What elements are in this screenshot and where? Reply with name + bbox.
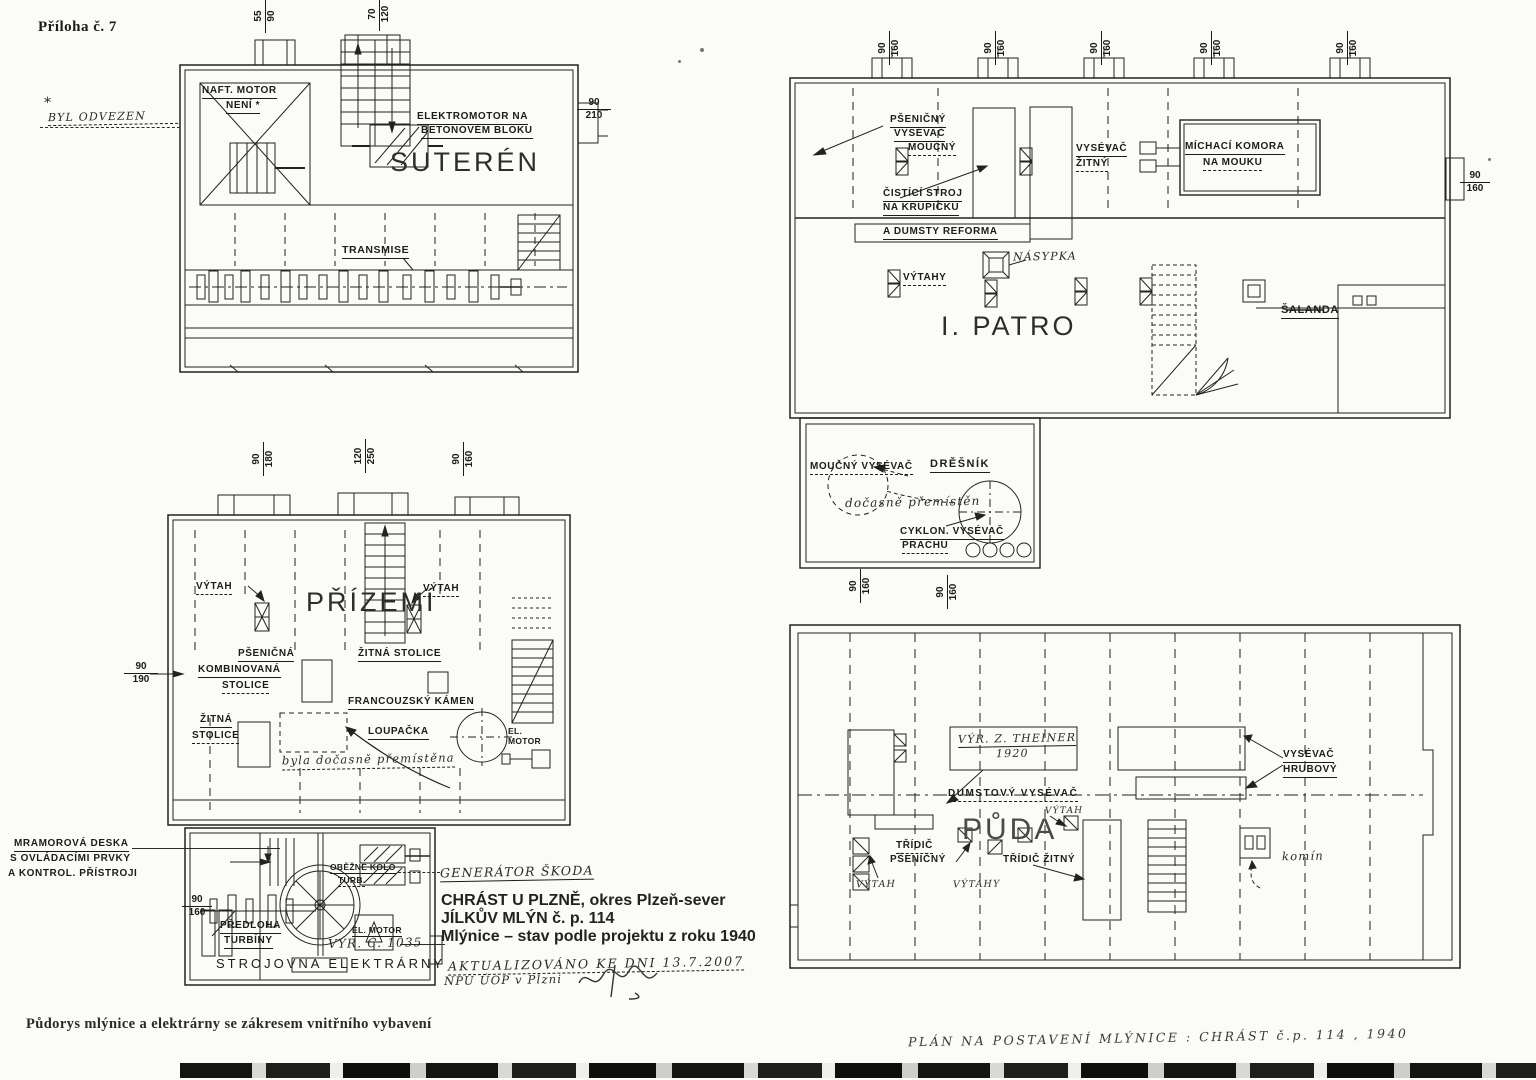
- label-michaci-komora-1: MÍCHACÍ KOMORA: [1185, 141, 1285, 155]
- dim-patro-top-5: 90160: [1335, 31, 1359, 65]
- dim-patro-bottom-1: 90160: [848, 569, 872, 603]
- label-neni: NENÍ *: [226, 100, 260, 114]
- label-el-motor-prizemi: EL. MOTOR: [508, 726, 541, 746]
- label-dumstovy-vysevac: DUMSTOVÝ VYSÉVAČ: [948, 788, 1078, 802]
- label-vysevac-hrubovy-1: VYSÉVAČ: [1283, 749, 1334, 763]
- label-nasypka: NÁSYPKA: [1013, 249, 1077, 263]
- attachment-number: Příloha č. 7: [38, 18, 117, 36]
- label-moucny-vysevac: MOUČNÝ VYSÉVAČ: [810, 461, 913, 475]
- label-tridic-psenicny-2: PŠENIČNÝ: [890, 854, 946, 866]
- label-mramorova-1: MRAMOROVÁ DESKA: [14, 838, 129, 852]
- label-dumsty-reforma: A DUMSTY REFORMA: [883, 226, 998, 240]
- label-predloha-2: TURBÍNY: [224, 935, 273, 949]
- label-psenicny-vysevac-1: PŠENIČNÝ: [890, 114, 946, 128]
- note-star: *: [44, 95, 52, 112]
- label-vytah-top: VÝTAH: [1045, 806, 1083, 817]
- label-vytah-left: VÝTAH: [196, 581, 232, 595]
- suteren-plan-drawing: [175, 28, 610, 388]
- dim-patro-top-3: 90160: [1089, 31, 1113, 65]
- note-docasne-premisten: dočasně přemístěn: [845, 494, 981, 511]
- label-obezne-kolo-1: OBĚŽNÉ KOLO: [330, 862, 396, 874]
- label-elektromotor-2: BETONOVÉM BLOKU: [421, 125, 533, 139]
- titleblock-line2: JÍLKŮV MLÝN č. p. 114: [441, 910, 614, 928]
- label-zitna-2: STOLICE: [192, 730, 239, 744]
- label-cistici-stroj-2: NA KRUPIČKU: [883, 202, 959, 216]
- label-komin: komín: [1282, 850, 1324, 865]
- note-byl-odvezen: BYL ODVEZEN: [48, 109, 178, 126]
- dim-patro-top-2: 90160: [983, 31, 1007, 65]
- label-vytah-left-puda: VÝTAH: [856, 879, 896, 891]
- scan-speck: [678, 60, 681, 63]
- titleblock-line3: Mlýnice – stav podle projektu z roku 194…: [441, 928, 756, 946]
- label-vysevac-hrubovy-2: HRUBOVÝ: [1283, 764, 1337, 778]
- label-salanda: ŠALANDA: [1281, 304, 1339, 319]
- generator-leader: [398, 872, 440, 873]
- titleblock-institution: NPÚ ÚOP v Plzni: [444, 973, 562, 989]
- label-loupacka: LOUPAČKA: [368, 726, 429, 740]
- label-zitna-stolice-right: ŽITNÁ STOLICE: [358, 648, 441, 662]
- label-vytah-right: VÝTAH: [423, 583, 459, 597]
- dim-suteren-right: 90210: [577, 97, 611, 121]
- title-prizemi: PŘÍZEMÍ: [306, 586, 437, 618]
- label-cyklon-1: CYKLON. VYSÉVAČ: [900, 526, 1004, 540]
- vyr-leader: [400, 944, 445, 945]
- scanned-floorplan-page: Příloha č. 7 * BYL ODVEZEN NAFT. MOTOR N…: [0, 0, 1536, 1080]
- label-francouzsky-kamen: FRANCOUZSKÝ KÁMEN: [348, 696, 474, 710]
- label-vysevac-zitny-1: VYSÉVAČ: [1076, 143, 1127, 157]
- titleblock-line1: CHRÁST U PLZNĚ, okres Plzeň-sever: [441, 892, 726, 910]
- title-puda: PŮDA: [962, 812, 1057, 848]
- label-cistici-stroj-1: ČISTÍCÍ STROJ: [883, 188, 962, 202]
- label-mramorova-2: S OVLÁDACÍMI PRVKY: [10, 853, 131, 865]
- scan-artifact-strip: [180, 1063, 1536, 1078]
- label-generator-skoda: GENERÁTOR ŠKODA: [440, 863, 594, 883]
- signature-scribble: [575, 963, 670, 1001]
- label-vytahy: VÝTAHY: [903, 272, 946, 286]
- scan-speck: [700, 48, 704, 52]
- dim-strojovna-left: 90160: [182, 894, 212, 918]
- note-leader: [40, 127, 180, 128]
- dim-patro-top-4: 90160: [1199, 31, 1223, 65]
- label-vyr-theiner: VÝR. Z. THEINER: [958, 731, 1076, 748]
- label-theiner-year: 1920: [996, 747, 1029, 761]
- bottom-handwritten-note: PLÁN NA POSTAVENÍ MLÝNICE : CHRÁST č.p. …: [908, 1026, 1409, 1050]
- page-caption: Půdorys mlýnice a elektrárny se zákresem…: [26, 1016, 432, 1033]
- dim-prizemi-top-1: 90180: [251, 442, 275, 476]
- dim-prizemi-left: 90190: [124, 661, 158, 685]
- label-psenicna-1: PŠENIČNÁ: [238, 648, 294, 662]
- title-patro: I. PATRO: [941, 310, 1077, 342]
- scan-speck: [1488, 158, 1491, 161]
- title-suteren: SUTERÉN: [390, 146, 540, 178]
- label-mramorova-3: A KONTROL. PŘÍSTROJI: [8, 868, 137, 880]
- label-zitna-1: ŽITNÁ: [200, 714, 232, 728]
- label-dresnik: DRĚŠNÍK: [930, 458, 990, 473]
- dim-suteren-top-2: 70120: [367, 0, 391, 31]
- label-psenicny-vysevac-3: MOUČNÝ: [908, 142, 956, 156]
- mramorova-leader: [132, 848, 280, 849]
- puda-plan-drawing: [778, 610, 1478, 978]
- label-obezne-kolo-2: TURB.: [338, 875, 365, 887]
- dim-patro-bottom-2: 90160: [935, 575, 959, 609]
- label-naft-motor: NAFT. MOTOR: [202, 85, 277, 99]
- label-vysevac-zitny-2: ŽITNÝ: [1076, 158, 1108, 172]
- label-elektromotor-1: ELEKTROMOTOR NA: [417, 111, 528, 125]
- dim-patro-right: 90160: [1460, 170, 1490, 194]
- label-psenicny-vysevac-2: VYSÉVAČ: [894, 128, 945, 142]
- label-tridic-zitny: TŘÍDIČ ŽITNÝ: [1003, 854, 1075, 866]
- label-cyklon-2: PRACHU: [902, 540, 948, 554]
- dim-suteren-top-1: 5590: [253, 0, 277, 33]
- label-predloha-1: PŘEDLOHA: [220, 920, 281, 934]
- dim-patro-top-1: 90160: [877, 31, 901, 65]
- label-psenicna-2: KOMBINOVANÁ: [198, 664, 281, 678]
- title-strojovna: STROJOVNA ELEKTRÁRNY: [216, 956, 445, 972]
- dim-prizemi-top-3: 90160: [451, 442, 475, 476]
- label-tridic-psenicny-1: TŘÍDIČ: [896, 840, 933, 854]
- label-michaci-komora-2: NA MOUKU: [1203, 157, 1262, 171]
- label-psenicna-3: STOLICE: [222, 680, 269, 694]
- label-vytahy-center-puda: VÝTAHY: [953, 879, 1001, 891]
- label-transmise: TRANSMISE: [342, 244, 409, 259]
- dim-prizemi-top-2: 120250: [353, 439, 377, 473]
- note-presunuta: byla dočasně přemístěna: [282, 751, 455, 770]
